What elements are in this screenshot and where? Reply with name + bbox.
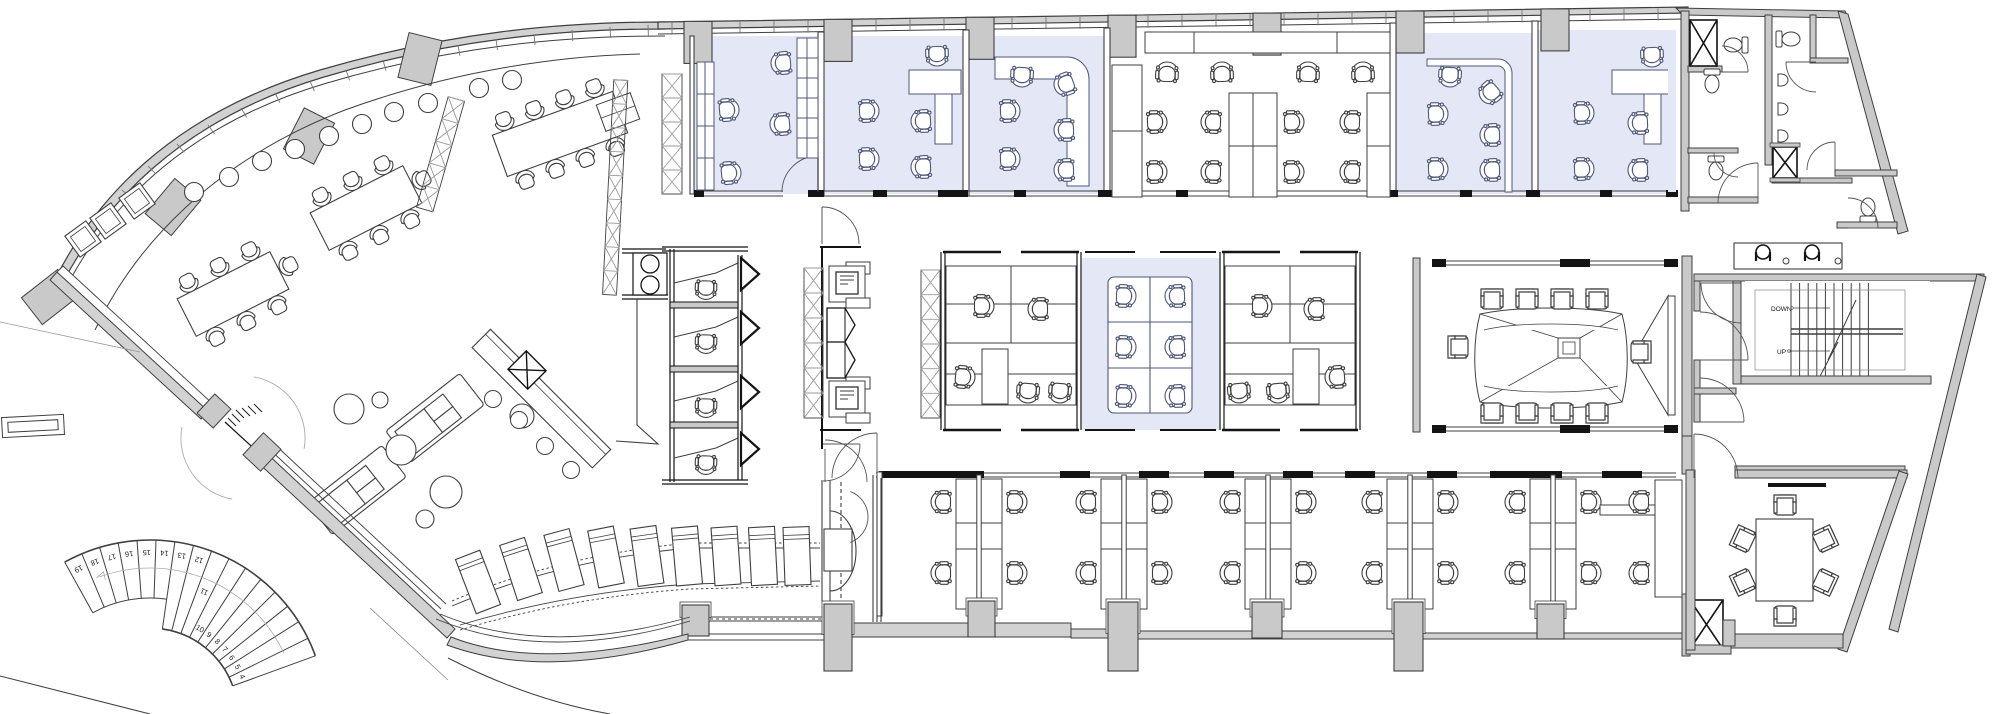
svg-text:15: 15: [142, 548, 150, 557]
svg-text:16: 16: [124, 549, 133, 559]
svg-text:UP: UP: [1777, 349, 1786, 356]
svg-text:DOWN: DOWN: [1771, 306, 1792, 313]
svg-text:14: 14: [160, 548, 169, 558]
svg-text:13: 13: [177, 550, 187, 560]
